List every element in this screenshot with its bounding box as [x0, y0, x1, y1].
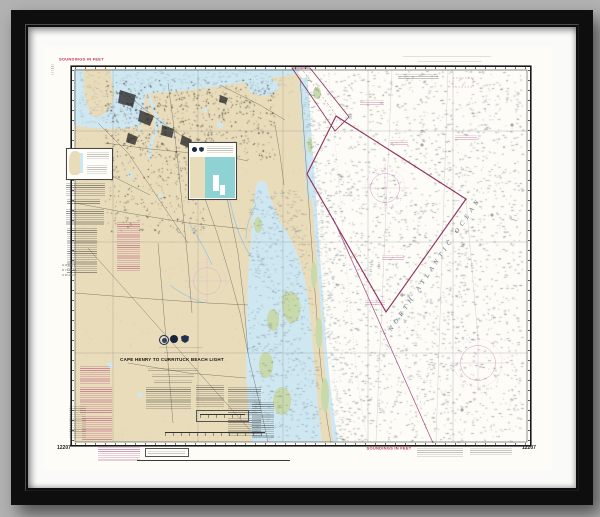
scale-bar-box — [196, 410, 249, 422]
projection-note-lines — [148, 368, 198, 372]
note-text-block — [66, 209, 104, 225]
agency-name-lines — [164, 352, 198, 354]
inset2-header-text — [207, 146, 233, 153]
note-text-block — [398, 74, 438, 80]
regulation-note-block — [117, 222, 140, 272]
ocean-note — [365, 300, 385, 305]
framed-nautical-chart-photo: SOUNDINGS IN FEET CAPE HENRY TO CUR — [0, 0, 600, 517]
top-margin-microtext — [418, 61, 482, 63]
note-text-block — [146, 387, 191, 409]
note-text-block — [67, 199, 100, 205]
chart-number-bottom-left: 12207 — [57, 445, 71, 451]
inset2-seal-icon — [199, 147, 204, 152]
inset-map-box-2 — [188, 142, 237, 200]
note-text-block — [82, 416, 112, 440]
ocean-note — [455, 135, 477, 141]
bottom-margin-box-text — [148, 451, 185, 455]
agency-name-lines — [159, 347, 203, 349]
swamp-label-line: SWAMP — [62, 273, 78, 278]
top-margin-microtext — [403, 56, 491, 58]
edition-note-line — [137, 460, 290, 461]
bottom-margin-microtext — [417, 448, 463, 458]
inset2-island — [213, 175, 219, 191]
logarithmic-speed-scale — [165, 432, 265, 436]
inset1-water — [80, 153, 83, 173]
bottom-margin-note — [98, 447, 140, 461]
swamp-name-label: GREAT DISMAL SWAMP — [62, 263, 78, 278]
inset-map-box-1 — [66, 148, 113, 180]
inset2-seal-icon — [192, 147, 197, 152]
note-text-block — [80, 366, 110, 384]
nos-seal-icon — [170, 335, 178, 343]
chart-number-bottom-right: 12207 — [522, 445, 536, 451]
inset2-island — [220, 185, 225, 195]
noaa-seal-icon — [159, 335, 169, 345]
soundings-note-bottom: SOUNDINGS IN FEET — [359, 446, 419, 451]
ocean-note — [382, 255, 404, 260]
inset1-text — [87, 165, 107, 175]
bottom-margin-box — [145, 448, 189, 457]
projection-note-lines — [154, 380, 192, 384]
note-text-block — [196, 385, 224, 407]
note-text-block — [66, 183, 105, 196]
bottom-margin-microtext — [470, 448, 512, 456]
note-text-block — [69, 406, 86, 438]
inset1-text — [87, 152, 109, 160]
chart-title: CAPE HENRY TO CURRITUCK BEACH LIGHT — [117, 357, 227, 362]
soundings-note-top: SOUNDINGS IN FEET — [59, 57, 139, 62]
ocean-note — [360, 100, 384, 106]
ocean-note — [390, 140, 408, 145]
left-margin-microtext — [51, 64, 54, 76]
scale-bar — [200, 414, 245, 418]
projection-note-lines — [152, 374, 194, 378]
